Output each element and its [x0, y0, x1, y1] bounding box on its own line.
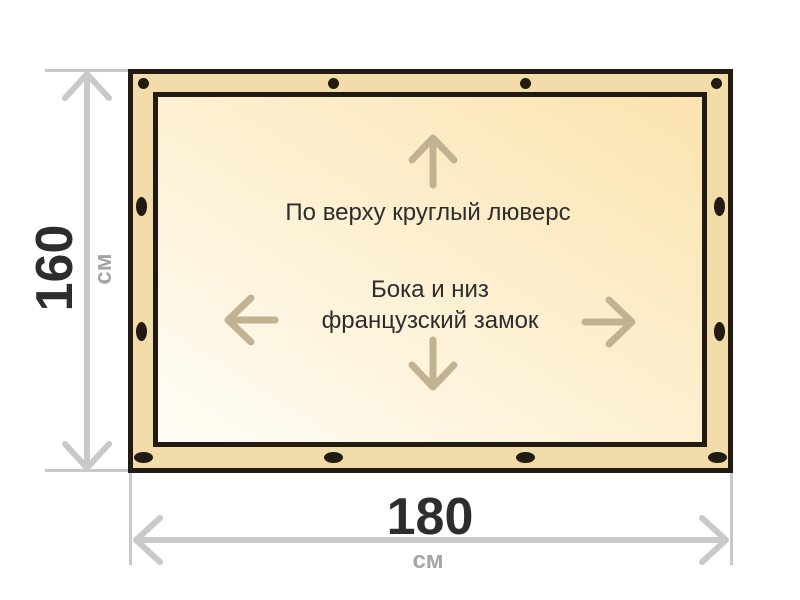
width-dimension-value: 180: [330, 489, 530, 545]
note-top-grommets: По верху круглый люверс: [203, 199, 653, 227]
height-dimension-value: 160: [27, 168, 83, 368]
note-sides-lock-line2: французский замок: [230, 305, 630, 336]
round-grommet-top-4: [711, 78, 722, 89]
round-grommet-top-3: [520, 78, 531, 89]
note-sides-lock-line1: Бока и низ: [230, 274, 630, 305]
round-grommet-top-1: [138, 78, 149, 89]
arrow-up-icon: [405, 131, 461, 189]
lock-slot-bottom-3: [516, 452, 535, 463]
lock-slot-right-2: [714, 322, 725, 341]
lock-slot-left-1: [136, 197, 147, 216]
note-sides-lock: Бока и низ французский замок: [230, 274, 630, 336]
height-dimension-unit: см: [90, 219, 118, 319]
lock-slot-bottom-4: [708, 452, 727, 463]
width-dimension-unit: см: [378, 548, 478, 574]
tarp-dimension-diagram: 160 см По верху круглый люверс Бока и ни…: [0, 0, 800, 600]
lock-slot-right-1: [714, 197, 725, 216]
lock-slot-bottom-2: [324, 452, 343, 463]
lock-slot-left-2: [136, 322, 147, 341]
round-grommet-top-2: [328, 78, 339, 89]
arrow-down-icon: [405, 336, 461, 394]
lock-slot-bottom-1: [134, 452, 153, 463]
